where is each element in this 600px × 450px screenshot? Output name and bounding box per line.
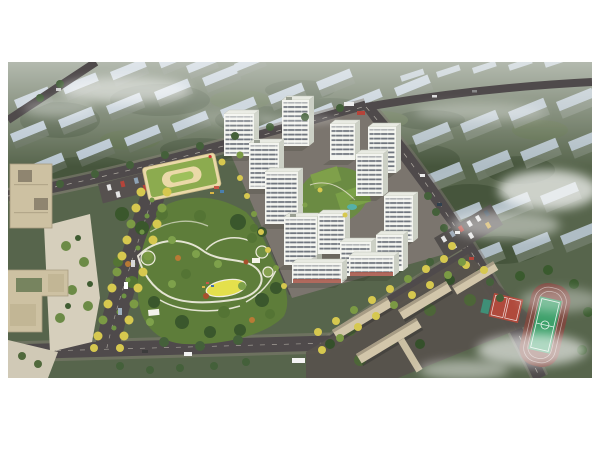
car	[142, 350, 148, 353]
car	[131, 260, 135, 267]
planting-bed	[263, 267, 273, 277]
car	[118, 308, 122, 315]
architectural-rendering-figure: Aerial perspective rendering of a modern…	[0, 0, 600, 450]
courtyard-pool	[347, 204, 357, 210]
car	[420, 174, 425, 177]
storefronts	[293, 279, 341, 283]
bus	[292, 358, 305, 363]
aerial-rendering	[0, 0, 600, 450]
retail-slab	[342, 252, 399, 281]
park-pavilion	[252, 258, 260, 263]
office-building-north	[10, 164, 52, 228]
car	[472, 90, 477, 93]
car	[184, 352, 192, 356]
car	[432, 95, 437, 98]
car	[437, 203, 442, 206]
storefronts	[350, 272, 393, 276]
bus	[357, 111, 365, 115]
park-pavilion	[148, 309, 160, 316]
car	[469, 257, 474, 260]
retail-slab	[285, 259, 347, 288]
bus	[344, 102, 354, 106]
car	[124, 282, 128, 289]
photo-area	[4, 47, 600, 380]
